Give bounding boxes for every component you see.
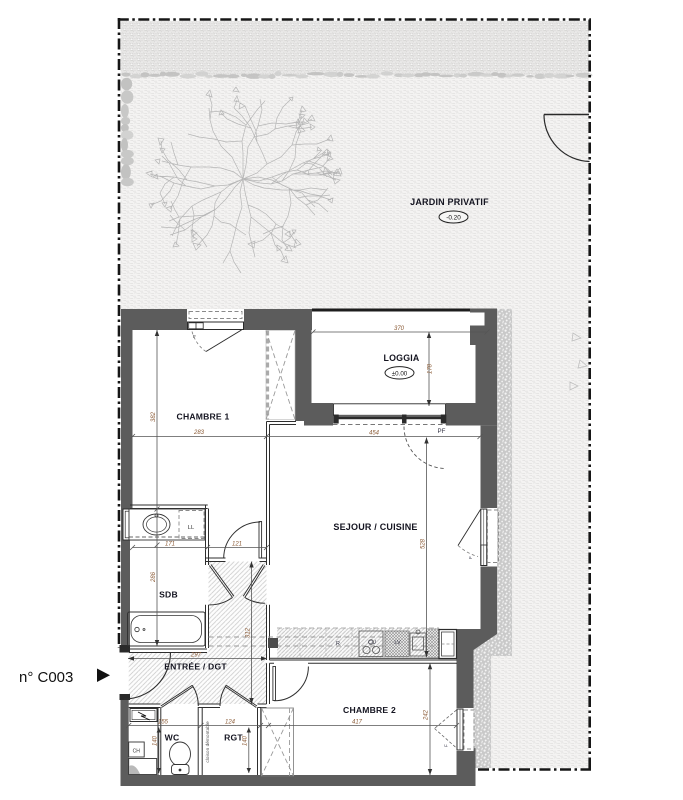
svg-text:RGT: RGT: [224, 733, 243, 743]
svg-text:F: F: [193, 334, 196, 340]
svg-text:LV: LV: [394, 640, 401, 646]
svg-text:417: 417: [352, 720, 363, 726]
svg-text:370: 370: [394, 326, 405, 332]
svg-text:SDB: SDB: [159, 590, 178, 600]
svg-text:cloison démontable: cloison démontable: [205, 721, 211, 763]
svg-text:528: 528: [421, 538, 427, 549]
svg-text:454: 454: [369, 431, 380, 437]
svg-text:LOGGIA: LOGGIA: [384, 353, 420, 363]
svg-text:n° C003: n° C003: [19, 669, 73, 686]
svg-text:CHAMBRE 2: CHAMBRE 2: [343, 705, 396, 715]
svg-text:-0.20: -0.20: [446, 215, 461, 222]
svg-text:±0.00: ±0.00: [392, 370, 408, 377]
svg-text:140: 140: [243, 735, 249, 746]
svg-text:CHAMBRE 1: CHAMBRE 1: [177, 412, 230, 422]
svg-text:F: F: [444, 744, 449, 747]
svg-text:242: 242: [424, 709, 430, 721]
svg-text:SEJOUR / CUISINE: SEJOUR / CUISINE: [333, 522, 417, 532]
svg-text:ENTRÉE / DGT: ENTRÉE / DGT: [164, 662, 227, 672]
svg-text:312: 312: [246, 627, 252, 638]
svg-text:LL: LL: [188, 525, 195, 531]
svg-text:121: 121: [232, 542, 242, 548]
svg-text:PF: PF: [438, 428, 446, 435]
svg-text:178: 178: [428, 363, 434, 374]
svg-text:286: 286: [151, 571, 157, 583]
svg-text:297: 297: [190, 653, 202, 659]
svg-text:140: 140: [153, 735, 159, 746]
svg-text:382: 382: [151, 411, 157, 422]
svg-text:R: R: [336, 641, 340, 647]
svg-text:JARDIN PRIVATIF: JARDIN PRIVATIF: [410, 197, 489, 207]
svg-text:CU: CU: [368, 640, 376, 646]
svg-text:155: 155: [158, 720, 169, 726]
svg-text:F: F: [468, 556, 473, 559]
svg-text:124: 124: [225, 720, 236, 726]
svg-text:171: 171: [165, 542, 175, 548]
svg-text:283: 283: [193, 430, 205, 436]
svg-text:WC: WC: [165, 733, 180, 743]
svg-text:CH: CH: [133, 748, 141, 754]
